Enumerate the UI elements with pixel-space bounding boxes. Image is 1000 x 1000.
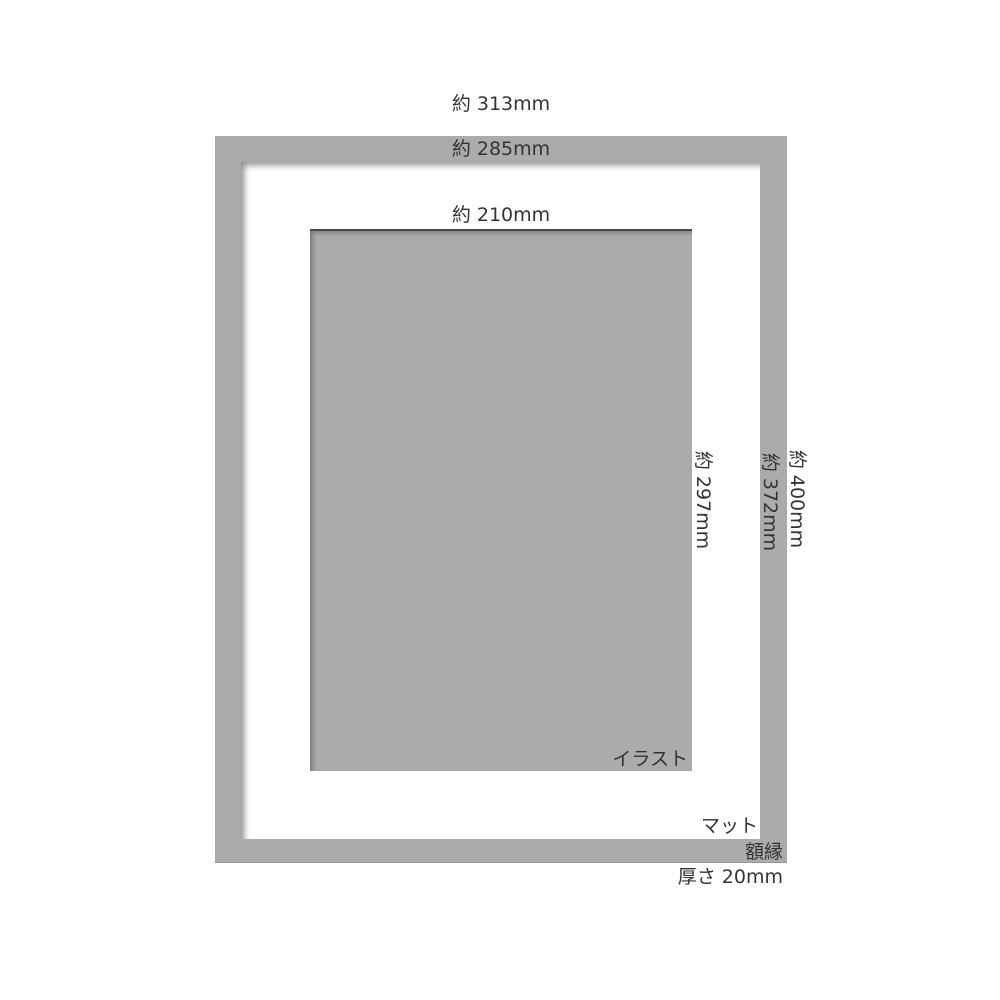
illustration-label: イラスト <box>612 748 688 770</box>
frame-label: 額縁 <box>215 841 785 863</box>
frame-size-diagram: 約 313mm 額縁 約 285mm マット 約 210mm イラスト 約 29… <box>0 0 1000 1000</box>
outer-height-dimension: 約 400mm <box>786 429 808 569</box>
illustration-height-dimension: 約 297mm <box>692 430 714 570</box>
mat-height-dimension: 約 372mm <box>759 432 781 572</box>
mat-label: マット <box>701 815 758 837</box>
outer-width-dimension: 約 313mm <box>215 93 787 115</box>
illustration-width-dimension: 約 210mm <box>310 204 692 226</box>
illustration-area: イラスト <box>310 229 692 771</box>
thickness-dimension: 厚さ 20mm <box>215 866 785 888</box>
mat-width-dimension: 約 285mm <box>215 138 787 160</box>
